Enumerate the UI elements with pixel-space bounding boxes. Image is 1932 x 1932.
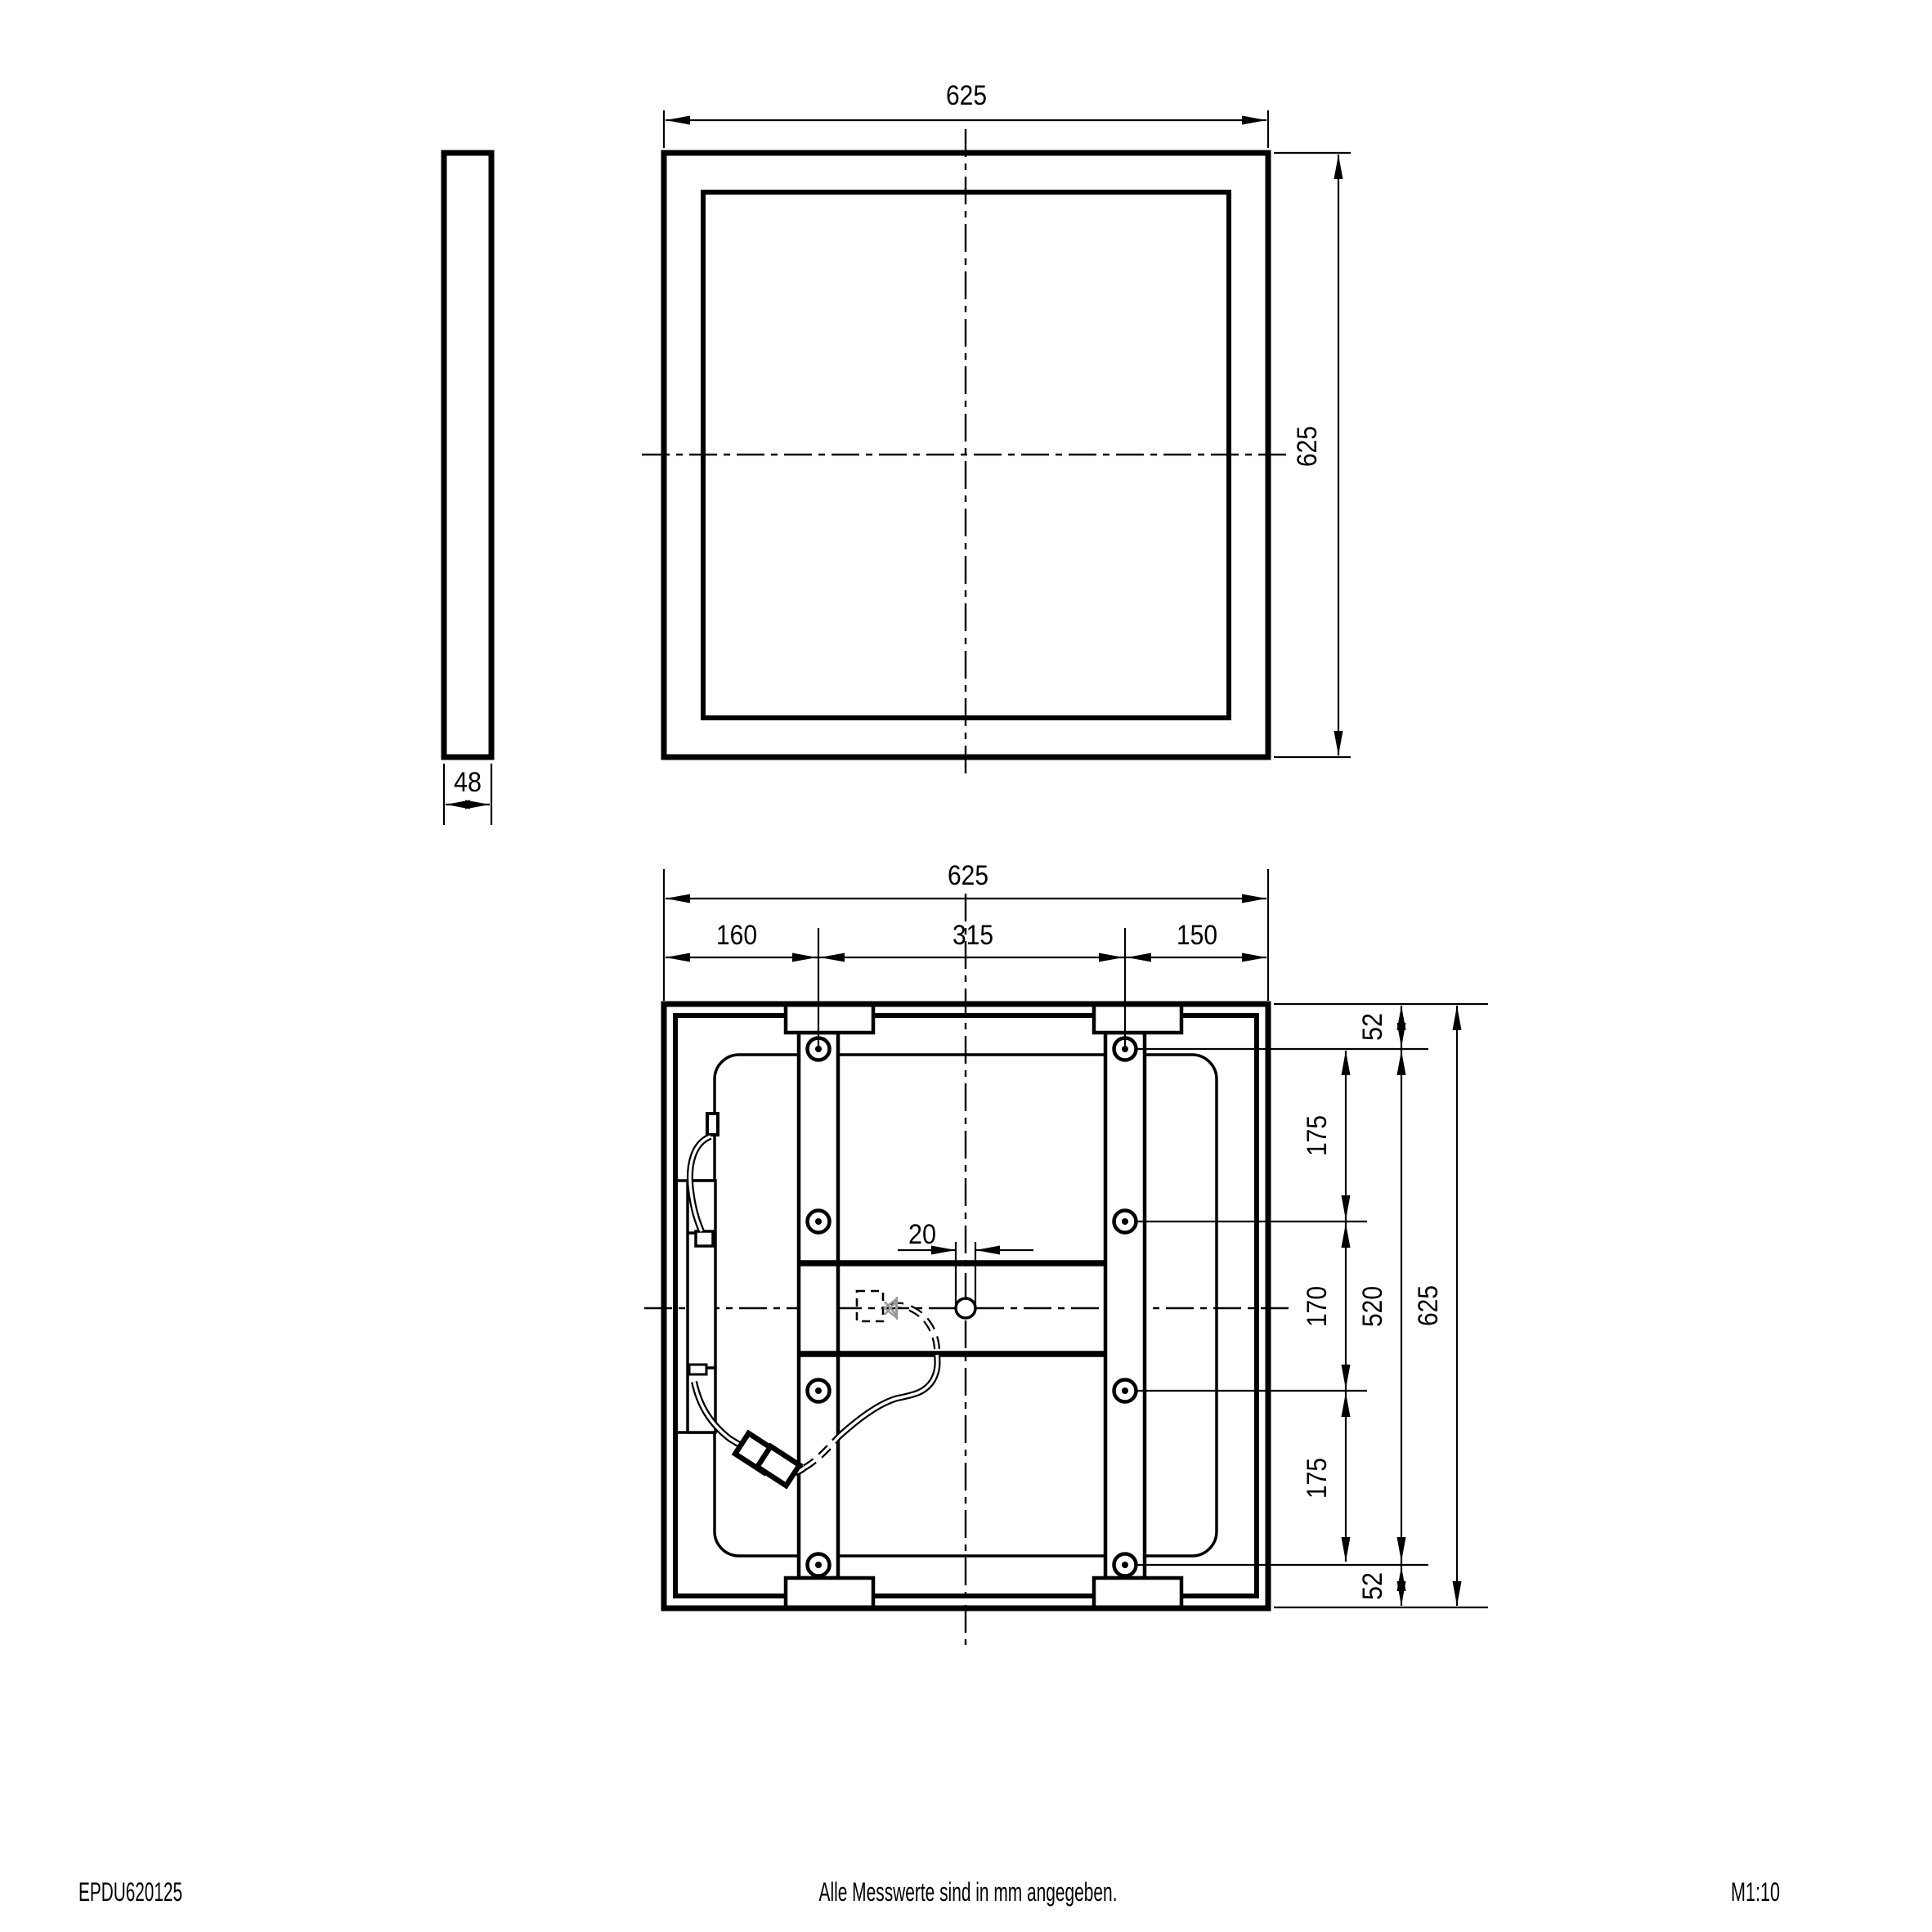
- cable-clamp-low: [689, 1365, 706, 1374]
- footer: EPDU620125 Alle Messwerte sind in mm ang…: [78, 1877, 1780, 1907]
- side-view: 48: [444, 153, 491, 825]
- segment-160-label: 160: [716, 920, 757, 951]
- bottom-view: 625 160 315 150 20: [644, 860, 1488, 1645]
- margin-52-top-label: 52: [1357, 1013, 1388, 1041]
- mounting-rail-left: [799, 1033, 838, 1578]
- span-175-upper-label: 175: [1302, 1115, 1333, 1156]
- drawing-scale: M1:10: [1731, 1877, 1780, 1907]
- segment-150-label: 150: [1177, 920, 1217, 951]
- front-height-label: 625: [1292, 426, 1323, 467]
- side-thickness-label: 48: [454, 767, 482, 798]
- side-view-profile: [444, 153, 491, 757]
- junction-box-hidden: [857, 1291, 883, 1321]
- bottom-width-label: 625: [948, 860, 988, 891]
- cable-entry-hole: [956, 1298, 975, 1318]
- part-number: EPDU620125: [78, 1877, 182, 1907]
- mounting-rail-right: [1105, 1033, 1145, 1578]
- span-520-label: 520: [1357, 1286, 1388, 1327]
- margin-52-bottom-label: 52: [1357, 1572, 1388, 1600]
- units-note: Alle Messwerte sind in mm angegeben.: [819, 1877, 1118, 1907]
- span-170-label: 170: [1302, 1286, 1333, 1327]
- front-view-centerlines: [642, 129, 1292, 780]
- cable-clamp-mid: [696, 1231, 713, 1246]
- front-width-label: 625: [946, 80, 987, 111]
- segment-315-label: 315: [953, 920, 993, 951]
- inline-connector: [735, 1433, 800, 1486]
- drawing-sheet: 48 625 625: [0, 0, 1932, 1932]
- hole-diameter-label: 20: [908, 1219, 936, 1250]
- front-view: 625 625: [642, 80, 1351, 780]
- total-625-label: 625: [1413, 1285, 1444, 1326]
- cable-clamp-top: [707, 1114, 718, 1135]
- technical-drawing: 48 625 625: [0, 0, 1932, 1932]
- span-175-lower-label: 175: [1302, 1458, 1333, 1499]
